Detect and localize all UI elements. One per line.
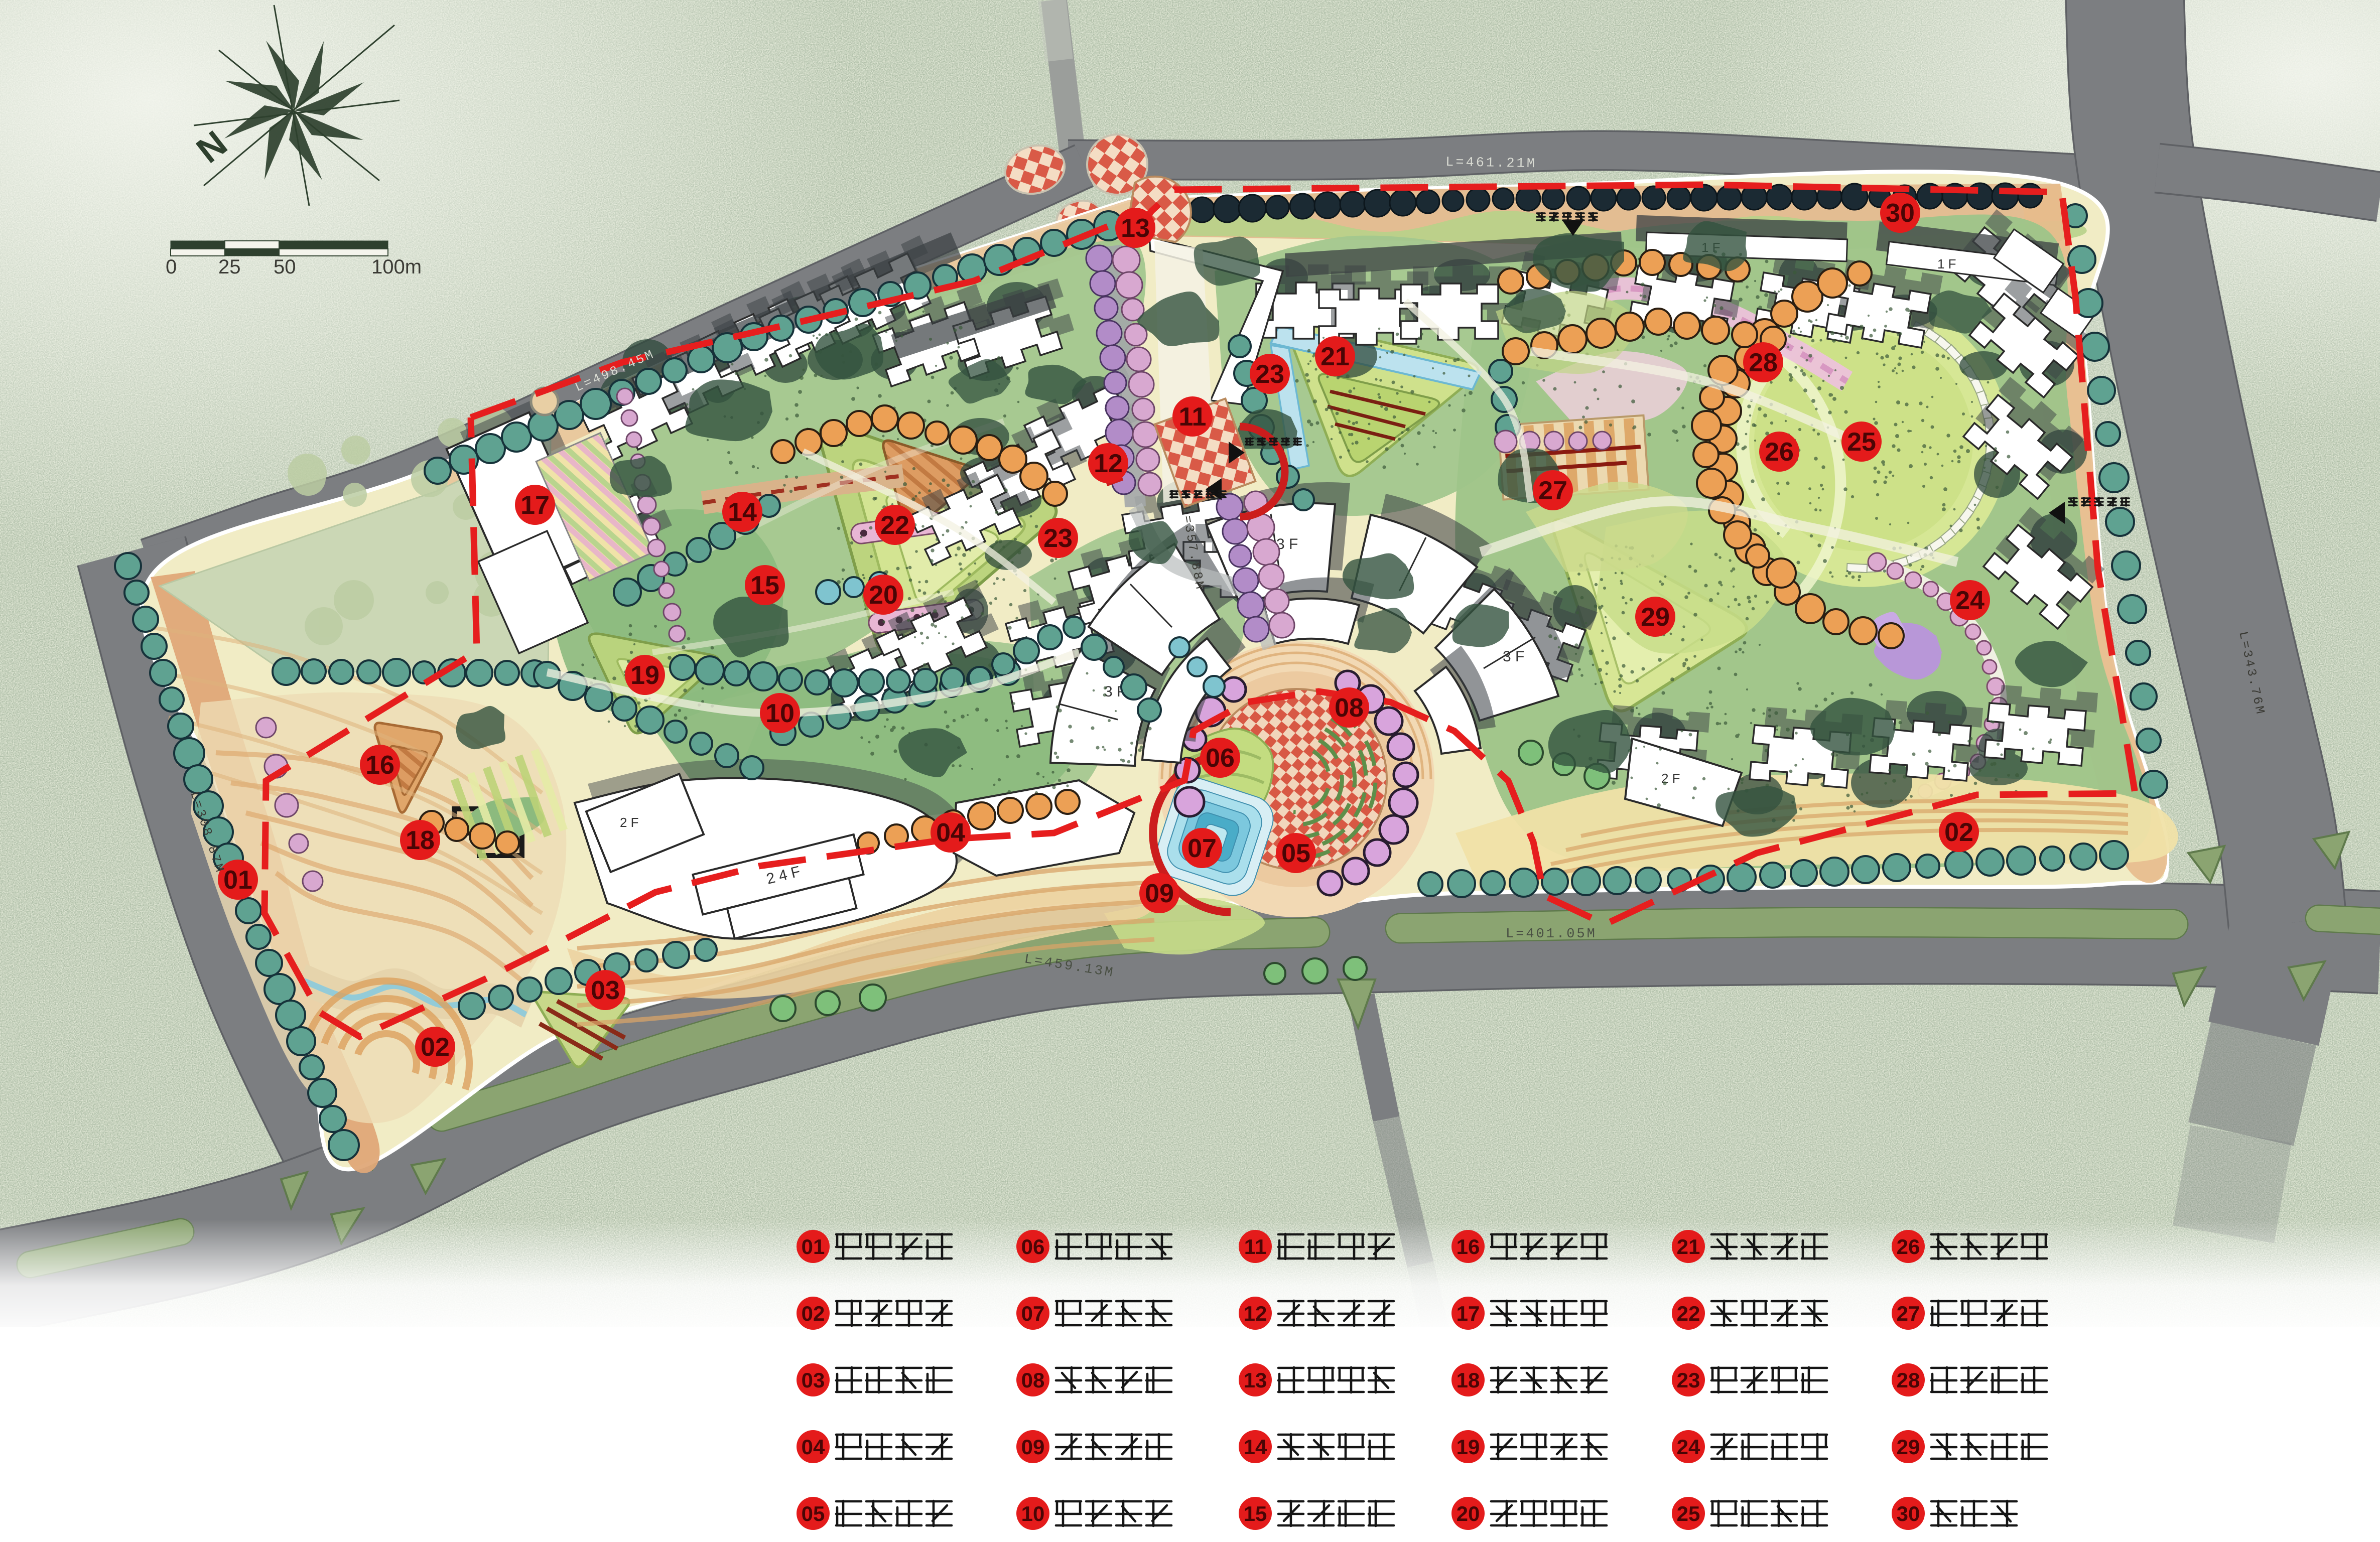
- svg-text:04: 04: [802, 1435, 825, 1459]
- svg-text:02: 02: [421, 1033, 450, 1062]
- svg-text:13: 13: [1121, 214, 1150, 243]
- svg-text:0: 0: [166, 256, 177, 278]
- svg-text:07: 07: [1021, 1302, 1045, 1325]
- svg-text:01: 01: [802, 1235, 825, 1258]
- svg-text:04: 04: [936, 818, 965, 848]
- svg-text:24: 24: [1677, 1435, 1700, 1459]
- svg-text:20: 20: [1457, 1502, 1480, 1525]
- svg-text:11: 11: [1179, 402, 1207, 432]
- svg-text:16: 16: [1457, 1235, 1480, 1258]
- svg-text:23: 23: [1043, 524, 1073, 553]
- svg-text:03: 03: [802, 1368, 825, 1392]
- svg-text:03: 03: [591, 976, 620, 1005]
- svg-text:10: 10: [1021, 1502, 1045, 1525]
- svg-text:L=461.21M: L=461.21M: [1445, 155, 1537, 172]
- svg-text:25: 25: [218, 256, 241, 278]
- svg-text:08: 08: [1335, 693, 1364, 723]
- svg-text:09: 09: [1145, 879, 1174, 908]
- svg-text:L=401.05M: L=401.05M: [1506, 927, 1597, 942]
- svg-text:25: 25: [1677, 1502, 1700, 1525]
- svg-text:21: 21: [1320, 342, 1350, 371]
- svg-text:50: 50: [274, 256, 296, 278]
- svg-text:05: 05: [802, 1502, 825, 1525]
- svg-text:100m: 100m: [371, 256, 422, 278]
- svg-text:14: 14: [728, 498, 757, 527]
- svg-text:30: 30: [1897, 1502, 1920, 1525]
- svg-text:01: 01: [223, 866, 252, 895]
- svg-text:12: 12: [1094, 449, 1123, 478]
- svg-text:22: 22: [880, 511, 909, 540]
- svg-text:08: 08: [1021, 1368, 1045, 1392]
- svg-text:18: 18: [406, 826, 435, 855]
- svg-text:10: 10: [765, 699, 795, 728]
- svg-text:15: 15: [750, 571, 779, 600]
- svg-text:28: 28: [1749, 348, 1778, 377]
- svg-text:02: 02: [802, 1302, 825, 1325]
- svg-text:27: 27: [1538, 476, 1567, 505]
- svg-text:17: 17: [520, 491, 550, 520]
- svg-text:1 F: 1 F: [1937, 256, 1956, 271]
- svg-text:19: 19: [1457, 1435, 1480, 1459]
- svg-text:29: 29: [1641, 603, 1670, 632]
- svg-text:26: 26: [1897, 1235, 1920, 1258]
- svg-text:06: 06: [1021, 1235, 1045, 1258]
- svg-text:07: 07: [1187, 834, 1217, 863]
- svg-text:06: 06: [1206, 744, 1235, 773]
- svg-text:02: 02: [1944, 818, 1973, 847]
- svg-text:30: 30: [1886, 199, 1915, 228]
- svg-text:23: 23: [1255, 360, 1284, 389]
- svg-text:23: 23: [1677, 1368, 1700, 1392]
- svg-text:3 F: 3 F: [1503, 648, 1524, 665]
- svg-text:11: 11: [1244, 1235, 1266, 1258]
- svg-text:26: 26: [1765, 438, 1794, 467]
- svg-text:05: 05: [1281, 839, 1310, 868]
- svg-text:13: 13: [1244, 1368, 1267, 1392]
- svg-text:12: 12: [1244, 1302, 1267, 1325]
- svg-text:16: 16: [365, 751, 394, 780]
- svg-text:25: 25: [1847, 428, 1876, 457]
- svg-text:28: 28: [1897, 1368, 1920, 1392]
- svg-text:19: 19: [630, 661, 659, 690]
- svg-text:17: 17: [1457, 1302, 1480, 1325]
- svg-text:24: 24: [1955, 586, 1985, 615]
- svg-text:18: 18: [1457, 1368, 1480, 1392]
- svg-text:15: 15: [1244, 1502, 1267, 1525]
- svg-text:2 F: 2 F: [620, 815, 639, 830]
- svg-text:09: 09: [1021, 1435, 1045, 1459]
- svg-text:22: 22: [1677, 1302, 1700, 1325]
- svg-text:20: 20: [869, 581, 898, 610]
- svg-text:27: 27: [1897, 1302, 1920, 1325]
- svg-text:21: 21: [1677, 1235, 1700, 1258]
- svg-text:29: 29: [1897, 1435, 1920, 1459]
- svg-text:14: 14: [1244, 1435, 1267, 1459]
